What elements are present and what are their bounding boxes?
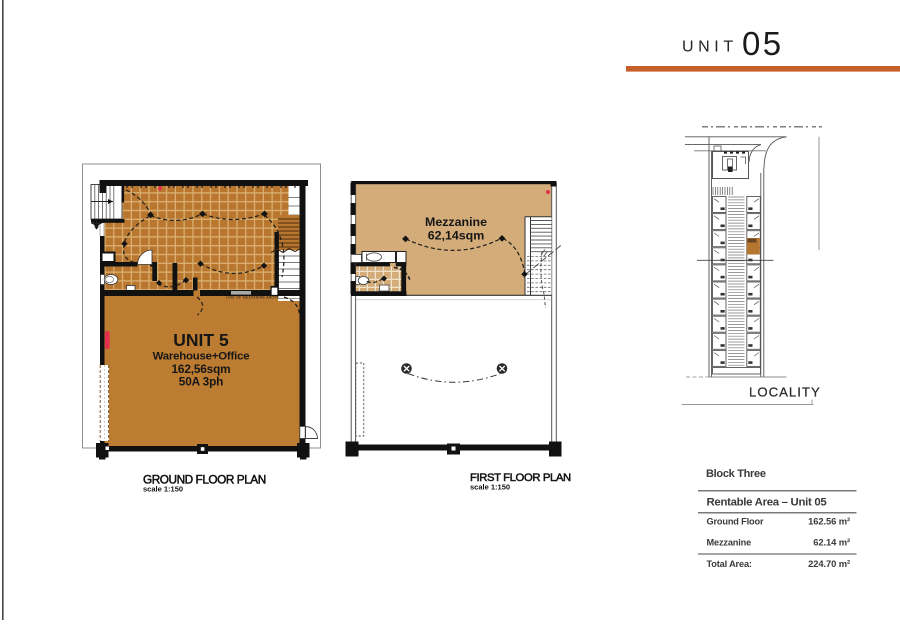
svg-text:scale 1:150: scale 1:150 — [143, 485, 183, 494]
svg-text:62.14 m²: 62.14 m² — [813, 537, 850, 548]
svg-text:162.56 m²: 162.56 m² — [808, 516, 850, 527]
svg-text:UNIT: UNIT — [682, 39, 738, 56]
svg-text:Warehouse+Office: Warehouse+Office — [153, 350, 250, 362]
svg-text:Total Area:: Total Area: — [707, 559, 752, 569]
svg-text:LINE OF MEZZANINE ABOVE: LINE OF MEZZANINE ABOVE — [226, 296, 280, 300]
svg-text:Mezzanine: Mezzanine — [707, 538, 752, 548]
svg-text:224.70 m²: 224.70 m² — [808, 558, 850, 569]
svg-text:scale 1:150: scale 1:150 — [470, 483, 510, 492]
svg-text:62,14sqm: 62,14sqm — [428, 229, 484, 243]
svg-text:Ground Floor: Ground Floor — [707, 517, 764, 527]
svg-text:Rentable Area – Unit 05: Rentable Area – Unit 05 — [707, 497, 828, 509]
svg-text:Mezzanine: Mezzanine — [425, 215, 487, 229]
svg-text:Block Three: Block Three — [706, 468, 766, 480]
svg-text:05: 05 — [742, 25, 784, 62]
svg-text:UNIT 5: UNIT 5 — [173, 330, 229, 350]
svg-text:LOCALITY: LOCALITY — [749, 385, 821, 400]
svg-text:50A 3ph: 50A 3ph — [179, 375, 223, 389]
